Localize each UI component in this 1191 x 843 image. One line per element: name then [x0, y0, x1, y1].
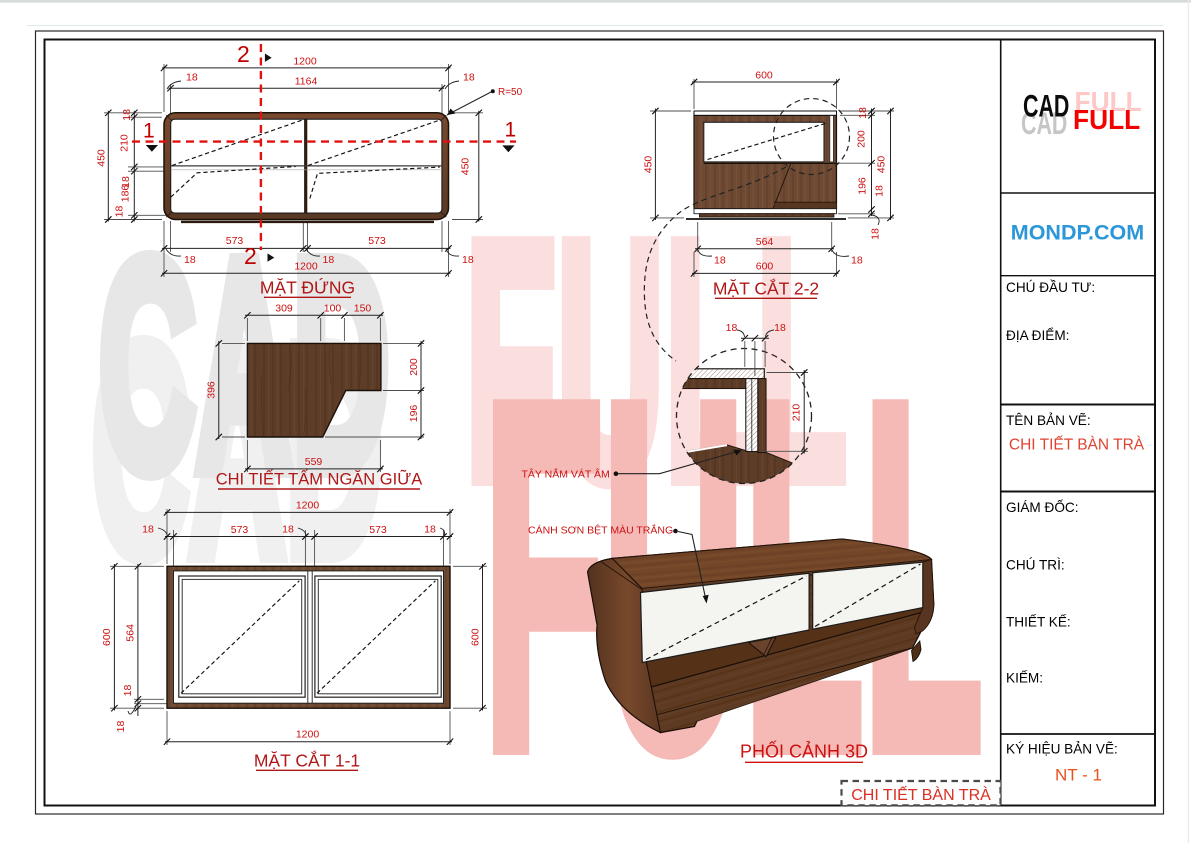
svg-text:PHỐI CẢNH 3D: PHỐI CẢNH 3D — [740, 741, 868, 762]
svg-text:18: 18 — [186, 72, 198, 84]
svg-text:196: 196 — [857, 177, 869, 195]
svg-text:200: 200 — [408, 358, 420, 376]
svg-text:210: 210 — [791, 404, 803, 422]
svg-text:TÊN BẢN VẼ:: TÊN BẢN VẼ: — [1006, 413, 1091, 428]
svg-text:396: 396 — [206, 381, 218, 399]
svg-text:18: 18 — [774, 322, 786, 334]
svg-text:CHÚ TRÌ:: CHÚ TRÌ: — [1006, 558, 1065, 573]
svg-text:MẶT CẮT 2-2: MẶT CẮT 2-2 — [713, 278, 819, 299]
svg-text:1200: 1200 — [296, 500, 320, 512]
svg-text:18: 18 — [462, 254, 474, 266]
svg-text:MONDP.COM: MONDP.COM — [1011, 221, 1144, 245]
svg-text:CÁNH SƠN BỆT MÀU TRẮNG: CÁNH SƠN BỆT MÀU TRẮNG — [528, 524, 673, 537]
svg-text:1200: 1200 — [293, 55, 317, 67]
svg-text:2: 2 — [244, 243, 257, 269]
svg-text:CAD: CAD — [1023, 88, 1069, 123]
svg-text:2: 2 — [237, 41, 250, 67]
svg-text:573: 573 — [226, 235, 244, 247]
svg-text:GIÁM ĐỐC:: GIÁM ĐỐC: — [1006, 500, 1079, 515]
svg-text:18: 18 — [851, 254, 863, 266]
svg-text:R=50: R=50 — [498, 87, 523, 98]
svg-text:564: 564 — [125, 624, 137, 642]
svg-text:18: 18 — [874, 185, 886, 197]
svg-text:600: 600 — [469, 628, 481, 646]
svg-text:1: 1 — [143, 120, 155, 143]
svg-text:186: 186 — [120, 185, 132, 203]
svg-text:NT - 1: NT - 1 — [1055, 766, 1102, 785]
svg-text:FULL: FULL — [1073, 103, 1140, 135]
svg-text:196: 196 — [408, 405, 420, 423]
svg-text:573: 573 — [368, 235, 386, 247]
svg-text:CHÚ ĐẦU TƯ:: CHÚ ĐẦU TƯ: — [1006, 280, 1095, 295]
svg-text:18: 18 — [870, 228, 882, 240]
svg-text:CHI TIẾT TẤM NGĂN GIỮA: CHI TIẾT TẤM NGĂN GIỮA — [216, 469, 423, 489]
svg-text:18: 18 — [115, 721, 127, 733]
svg-text:1164: 1164 — [295, 76, 318, 88]
svg-text:18: 18 — [323, 254, 335, 266]
svg-text:KÝ HIỆU BẢN VẼ:: KÝ HIỆU BẢN VẼ: — [1006, 742, 1118, 757]
svg-text:450: 450 — [96, 149, 108, 167]
svg-text:18: 18 — [122, 685, 134, 697]
svg-text:KIẾM:: KIẾM: — [1006, 671, 1043, 686]
svg-text:450: 450 — [876, 156, 888, 174]
svg-text:600: 600 — [101, 628, 113, 646]
svg-text:TÂY NẮM VÁT ÂM: TÂY NẮM VÁT ÂM — [522, 468, 610, 481]
svg-text:600: 600 — [755, 69, 773, 81]
svg-text:100: 100 — [324, 303, 342, 315]
svg-text:ĐỊA ĐIỂM:: ĐỊA ĐIỂM: — [1006, 328, 1069, 343]
svg-text:600: 600 — [756, 261, 774, 273]
svg-text:564: 564 — [756, 236, 774, 248]
svg-text:18: 18 — [463, 72, 475, 84]
svg-text:150: 150 — [354, 303, 372, 315]
svg-text:18: 18 — [184, 254, 196, 266]
svg-text:18: 18 — [726, 322, 738, 334]
svg-text:18: 18 — [114, 206, 126, 218]
svg-text:210: 210 — [119, 134, 131, 152]
svg-text:MẶT ĐỨNG: MẶT ĐỨNG — [260, 277, 355, 298]
svg-text:MẶT CẮT 1-1: MẶT CẮT 1-1 — [254, 750, 360, 771]
svg-text:THIẾT KẾ:: THIẾT KẾ: — [1006, 615, 1071, 630]
svg-text:450: 450 — [460, 158, 472, 176]
svg-text:18: 18 — [714, 254, 726, 266]
svg-text:18: 18 — [142, 524, 154, 536]
svg-text:200: 200 — [856, 130, 868, 148]
svg-text:1200: 1200 — [294, 260, 318, 272]
svg-text:CHI TIẾT BÀN TRÀ: CHI TIẾT BÀN TRÀ — [1009, 437, 1145, 454]
svg-text:18: 18 — [121, 109, 133, 121]
svg-text:559: 559 — [305, 456, 323, 468]
svg-text:573: 573 — [369, 524, 387, 536]
svg-text:1200: 1200 — [296, 728, 320, 740]
svg-text:18: 18 — [857, 107, 869, 119]
svg-text:450: 450 — [643, 156, 655, 174]
svg-text:1: 1 — [505, 119, 517, 142]
svg-text:18: 18 — [424, 524, 436, 536]
svg-text:309: 309 — [275, 303, 293, 315]
svg-text:573: 573 — [231, 524, 249, 536]
svg-text:18: 18 — [282, 524, 294, 536]
svg-text:CHI TIẾT BÀN TRÀ: CHI TIẾT BÀN TRÀ — [851, 785, 991, 804]
